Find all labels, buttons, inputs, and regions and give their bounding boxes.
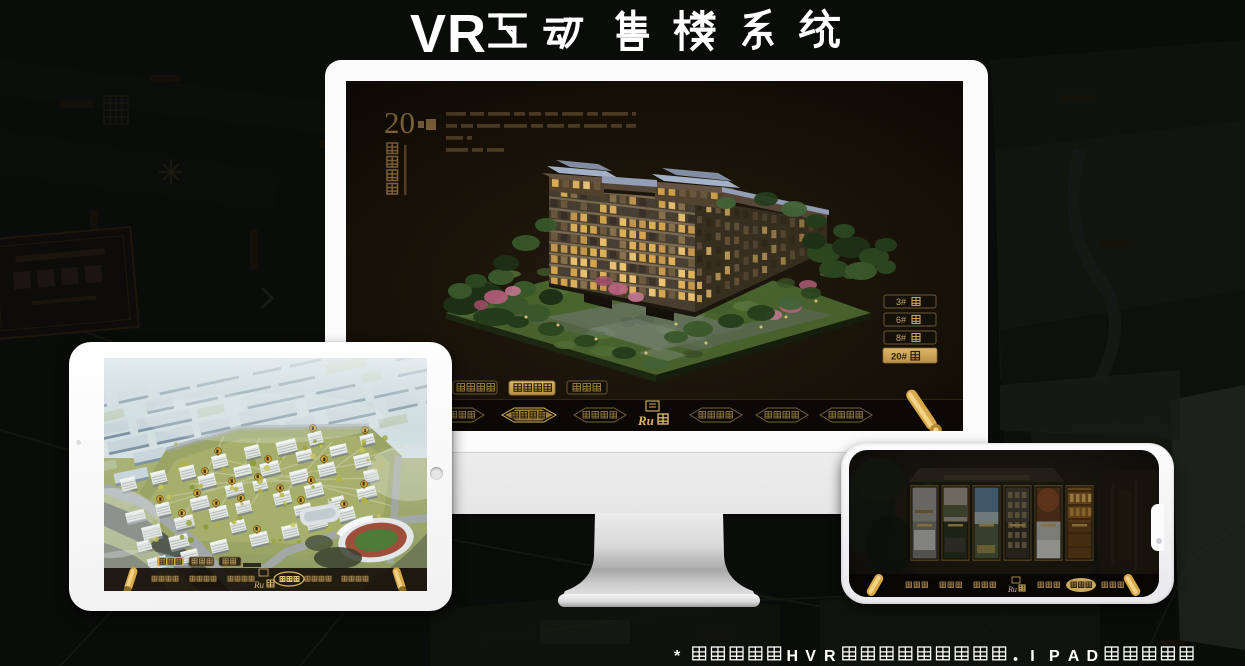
svg-text:A: A — [1068, 648, 1080, 665]
svg-text:Ru: Ru — [253, 580, 264, 590]
svg-text:VR: VR — [410, 4, 487, 64]
svg-text:P: P — [1049, 648, 1060, 665]
svg-text:3#: 3# — [896, 297, 906, 307]
svg-text:8#: 8# — [896, 333, 906, 343]
svg-text:Ru: Ru — [637, 413, 654, 428]
svg-text:*: * — [674, 648, 681, 665]
svg-text:D: D — [1087, 648, 1099, 665]
svg-text:V: V — [805, 648, 816, 665]
svg-text:I: I — [1030, 648, 1034, 665]
svg-text:R: R — [824, 648, 836, 665]
svg-text:6#: 6# — [896, 315, 906, 325]
svg-text:Ru: Ru — [1007, 585, 1017, 594]
svg-text:H: H — [787, 648, 799, 665]
svg-text:20#: 20# — [891, 352, 908, 363]
